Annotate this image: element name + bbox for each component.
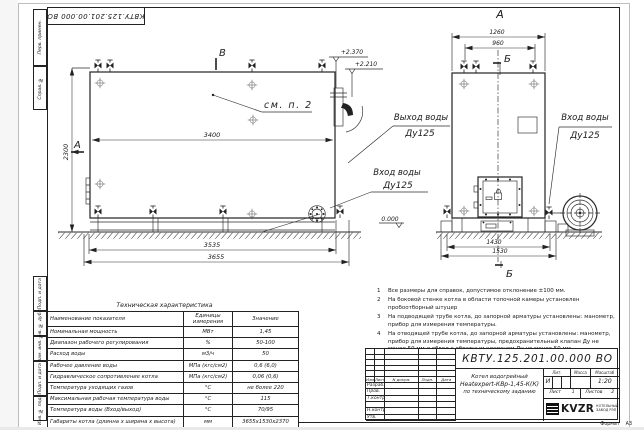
section-mark-b-bottom: Б [506, 269, 513, 280]
section-mark-a: А [73, 140, 81, 151]
valve-icon [473, 61, 480, 73]
drawing-sheet: КВТУ.125.201.00.000 ВО Перв. примен. Спр… [0, 0, 644, 430]
valve-icon [337, 206, 344, 218]
outlet-label: Выход воды [394, 113, 448, 123]
elevation-top: +2.370 [341, 49, 363, 56]
title-block-left: Изм Лист N докум. Подп. Дата Разраб. Про… [366, 349, 456, 421]
inspection-hatch [518, 117, 537, 133]
valve-icon [319, 60, 326, 72]
view-title-a: А [495, 8, 504, 21]
pipe-labels: Выход воды Ду125 Вход воды Ду125 Вход во… [330, 113, 612, 208]
margin-box-podp-data-1: Подп. и дата [33, 276, 47, 311]
product-description: Котел водогрейный Heatexpert-КВр-1,45-К(… [456, 369, 544, 421]
company-name: КОТЕЛЬНЫЙ ЗАВОД РЭП [596, 405, 618, 413]
inlet-flange [309, 206, 326, 223]
dim-side-total: 3655 [208, 253, 225, 261]
front-view [441, 50, 600, 262]
margin-box-perv-primen: Перв. примен. [33, 9, 47, 66]
target-mark-icon [95, 78, 106, 89]
dim-side-height: 2300 [62, 144, 70, 161]
target-mark-icon [248, 115, 259, 126]
valve-icon [95, 60, 102, 72]
inlet-side-label: Вход воды [373, 168, 421, 178]
target-mark-icon [529, 206, 540, 217]
dim-side-base: 3535 [204, 241, 221, 249]
inlet-front-dn: Ду125 [569, 131, 600, 141]
sheet-row: Лист1 Листов2 [544, 389, 619, 398]
margin-box-podp-data-2: Подп. и дата [33, 361, 47, 396]
dim-front-base: 1430 [486, 239, 501, 246]
kvzr-logo-icon [546, 403, 559, 415]
dim-side-inner: 3400 [204, 131, 221, 139]
callout-see-item: см. п. 2 [264, 100, 313, 111]
section-mark-b-top: Б [504, 54, 511, 65]
table-row: Температура уходящих газов°Сне более 220 [48, 382, 299, 393]
note-item: 1Все размеры для справок, допустимое отк… [377, 288, 615, 296]
inlet-front-label: Вход воды [561, 113, 609, 123]
tech-table-header: Наименование показателя Единицы измерени… [48, 312, 299, 327]
role-row: Утв. [366, 415, 455, 421]
note-item: 3На подводящей трубе котла, до запорной … [377, 314, 615, 329]
inlet-side-dn: Ду125 [382, 181, 413, 191]
dim-front-total: 1530 [492, 248, 507, 255]
revision-grid [366, 349, 455, 377]
elevation-mid: +2.210 [355, 61, 377, 68]
dim-front-top-inner: 960 [492, 40, 504, 47]
valve-icon [107, 60, 114, 72]
outlet-dn: Ду125 [404, 129, 435, 139]
kvzr-logo-text: KVZR [561, 403, 594, 415]
lit-mass-scale-values: И 1:20 [544, 376, 619, 389]
blower-fan [558, 193, 600, 236]
margin-box-sprav-no: Справ. № [33, 66, 47, 110]
top-stamp: КВТУ.125.201.00.000 ВО [47, 7, 145, 25]
valve-icon [530, 61, 537, 73]
valve-icon [249, 60, 256, 72]
valve-icon [95, 206, 102, 218]
elevation-flag-icon [349, 69, 355, 74]
front-dimensions: А 1260 960 Б 1430 1530 Б 0.000 [379, 8, 556, 280]
section-mark-b: В [219, 48, 226, 59]
valve-icon [150, 206, 157, 218]
doc-number: КВТУ.125.201.00.000 ВО [456, 349, 619, 369]
valve-icon [220, 206, 227, 218]
elevation-flag-icon [333, 57, 339, 62]
table-row: Расход водым3/ч50 [48, 349, 299, 360]
table-row: Диапазон рабочего регулирования%50-100 [48, 338, 299, 349]
format-label: Формат А3 [548, 422, 632, 427]
table-row: Номинальная мощностьМВт1,45 [48, 327, 299, 338]
dim-front-top: 1260 [489, 29, 504, 36]
top-stamp-number: КВТУ.125.201.00.000 ВО [47, 12, 145, 20]
table-row: Температура воды (Вход/выход)°С70/95 [48, 405, 299, 416]
table-row: Максимальная рабочая температура воды°С1… [48, 394, 299, 405]
target-mark-icon [459, 206, 470, 217]
mass-value [571, 376, 591, 389]
table-row: Гидравлическое сопротивление котлаМПа (к… [48, 371, 299, 382]
table-row: Габариты котла (длинна х ширина х высота… [48, 416, 299, 427]
lit-value: И [544, 376, 553, 389]
target-mark-icon [247, 80, 258, 91]
scale-value: 1:20 [591, 376, 619, 389]
title-block-right: Лит. Масса Масштаб И 1:20 Лист1 Листов2 … [544, 369, 619, 421]
tech-table-title: Техническая характеристика [57, 302, 272, 309]
table-row: Рабочее давление водыМПа (кгс/см2)0,6 (6… [48, 360, 299, 371]
valve-icon [444, 206, 451, 218]
valve-icon [461, 61, 468, 73]
side-view [86, 60, 363, 232]
target-mark-icon [529, 79, 540, 90]
lit-mass-scale-headers: Лит. Масса Масштаб [544, 369, 619, 376]
tech-table: Наименование показателя Единицы измерени… [47, 311, 299, 428]
target-mark-icon [459, 79, 470, 90]
note-item: 2На боковой стенке котла в области топоч… [377, 297, 615, 312]
notes-list: 1Все размеры для справок, допустимое отк… [377, 288, 615, 356]
title-block: Изм Лист N докум. Подп. Дата Разраб. Про… [365, 348, 618, 420]
elevation-zero: 0.000 [381, 216, 398, 223]
margin-box-vzam-inv: Взам. инв. № [33, 336, 47, 361]
margin-box-inv-podl: Инв. № подл. [33, 396, 47, 421]
company-block: KVZR КОТЕЛЬНЫЙ ЗАВОД РЭП [544, 398, 619, 419]
elevation-flag-icon [396, 223, 402, 228]
target-mark-icon [95, 179, 106, 190]
ground [58, 232, 602, 239]
